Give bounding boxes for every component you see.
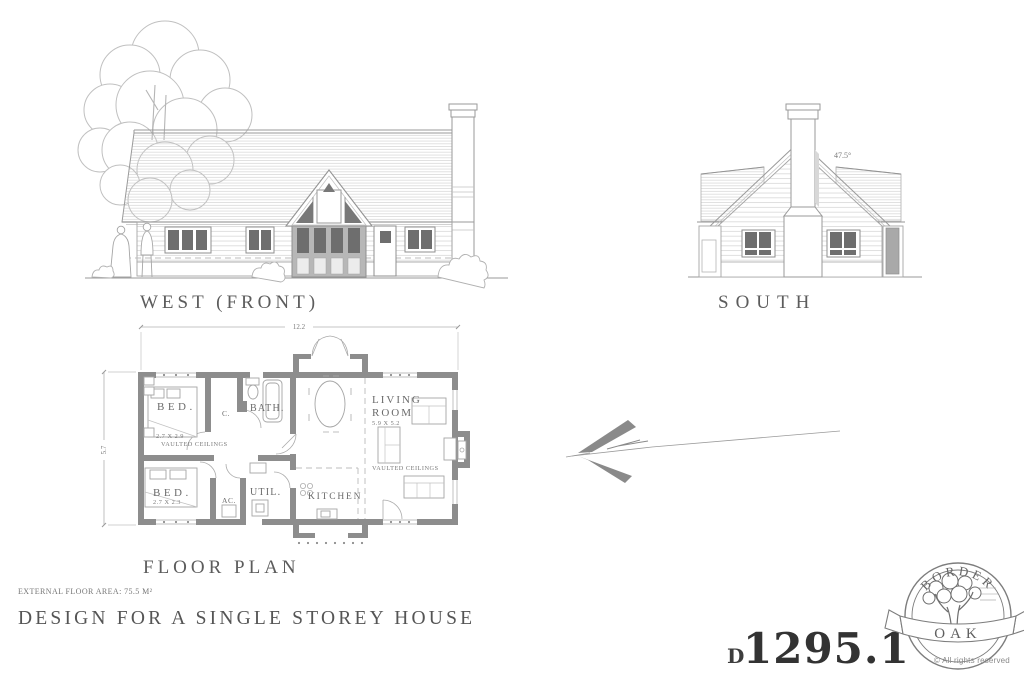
west-elevation-drawing: WEST (FRONT) [78, 21, 508, 313]
south-elevation-label: SOUTH [718, 292, 816, 313]
west-roof [122, 130, 470, 225]
plan-width-dimension: 12.2 [293, 323, 306, 331]
west-chimney [449, 104, 477, 276]
floor-plan-label: FLOOR PLAN [143, 557, 300, 578]
room-size-bed2: 2.7 X 2.3 [153, 499, 181, 506]
room-label-kitchen: KITCHEN [308, 492, 362, 502]
logo-rights-text: © All rights reserved [934, 656, 1010, 665]
room-size-living: 5.9 X 5.2 [372, 420, 400, 427]
drawing-number: 1295.1 [743, 624, 910, 673]
south-window-right [827, 230, 860, 257]
plan-depth-dimension: 5.7 [100, 445, 108, 454]
south-window-left [742, 230, 775, 257]
north-arrow [566, 420, 840, 483]
room-label-util: UTIL. [250, 487, 281, 498]
west-entrance-door [374, 226, 396, 276]
west-window-mid [246, 227, 274, 253]
west-elevation-label: WEST (FRONT) [140, 292, 319, 313]
room-label-bath: BATH. [250, 403, 285, 414]
room-label-bed2: BED. [153, 487, 192, 499]
room-label-living-2: ROOM [372, 407, 413, 419]
logo-banner-text: OAK [934, 626, 982, 642]
roof-pitch-annotation: 47.5° [834, 151, 851, 160]
room-size-bed1: 2.7 X 2.9 [156, 433, 184, 440]
architectural-drawing: WEST (FRONT) [0, 0, 1024, 687]
drawing-sheet: WEST (FRONT) [0, 0, 1024, 687]
footer-block: EXTERNAL FLOOR AREA: 75.5 M² DESIGN FOR … [18, 587, 910, 673]
west-window-right [405, 227, 435, 252]
drawing-title: DESIGN FOR A SINGLE STOREY HOUSE [18, 608, 475, 629]
room-note-living: VAULTED CEILINGS [372, 465, 439, 472]
floor-area-note: EXTERNAL FLOOR AREA: 75.5 M² [18, 587, 153, 596]
room-label-bed1: BED. [157, 401, 196, 413]
room-label-living-1: LIVING [372, 394, 422, 406]
room-note-bed1: VAULTED CEILINGS [161, 441, 228, 448]
floor-plan-drawing: 12.2 5.7 [97, 320, 470, 578]
south-elevation-drawing: 47.5° SOUTH [688, 104, 922, 313]
west-window-left [165, 227, 211, 253]
room-label-closet: C. [222, 409, 230, 418]
room-label-ac: AC. [222, 496, 236, 505]
drawing-number-prefix: D [727, 644, 744, 668]
